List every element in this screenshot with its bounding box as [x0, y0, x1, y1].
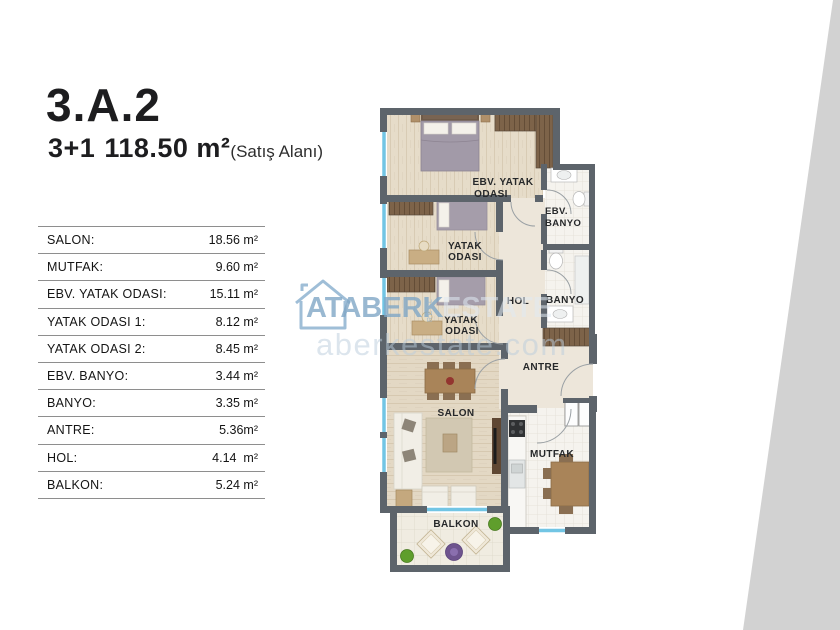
label-ebv-banyo: EBV.	[545, 206, 568, 217]
area-row: MUTFAK: 9.60 m²	[38, 253, 265, 280]
area-row-value: 8.12 m²	[216, 315, 265, 329]
label-banyo: BANYO	[546, 295, 584, 306]
area-row-label: YATAK ODASI 1:	[38, 315, 146, 329]
label-bedroom2: YATAK	[444, 315, 478, 326]
area-row-value: 3.44 m²	[216, 369, 265, 383]
label-bedroom1: YATAK	[448, 241, 482, 252]
area-row-value: 18.56 m²	[209, 233, 265, 247]
area-row-label: MUTFAK:	[38, 260, 103, 274]
label-antre: ANTRE	[523, 362, 559, 373]
label-mutfak: MUTFAK	[530, 449, 574, 460]
area-row-label: EBV. BANYO:	[38, 369, 128, 383]
svg-text:ODASI: ODASI	[474, 189, 508, 200]
area-row: SALON: 18.56 m²	[38, 226, 265, 253]
area-row-label: EBV. YATAK ODASI:	[38, 287, 167, 301]
area-row-label: ANTRE:	[38, 423, 95, 437]
area-row-value: 8.45 m²	[216, 342, 265, 356]
label-salon: SALON	[438, 408, 475, 419]
area-row: BANYO: 3.35 m²	[38, 389, 265, 416]
area-row-value: 5.24 m²	[216, 478, 265, 492]
area-row: BALKON: 5.24 m²	[38, 471, 265, 499]
area-row-label: YATAK ODASI 2:	[38, 342, 146, 356]
area-row: EBV. YATAK ODASI: 15.11 m²	[38, 280, 265, 307]
svg-text:ODASI: ODASI	[448, 252, 482, 263]
area-note: (Satış Alanı)	[230, 143, 323, 160]
layout-type: 3+1	[48, 135, 95, 162]
area-row-label: HOL:	[38, 451, 77, 465]
area-row-value: 4.14 m²	[212, 451, 265, 465]
area-row-value: 5.36m²	[219, 423, 265, 437]
area-row-label: BALKON:	[38, 478, 103, 492]
label-master-bedroom: EBV. YATAK	[472, 177, 533, 188]
area-row: HOL: 4.14 m²	[38, 444, 265, 471]
area-row-label: SALON:	[38, 233, 95, 247]
area-row-value: 9.60 m²	[216, 260, 265, 274]
area-row-value: 3.35 m²	[216, 396, 265, 410]
area-row-value: 15.11 m²	[210, 287, 265, 301]
unit-code-title: 3.A.2	[46, 82, 161, 128]
svg-text:BANYO: BANYO	[545, 218, 581, 229]
total-area: 118.50 m²	[104, 135, 230, 162]
area-row: YATAK ODASI 2: 8.45 m²	[38, 335, 265, 362]
svg-text:ODASI: ODASI	[445, 326, 479, 337]
unit-spec-subtitle: 3+1 118.50 m² (Satış Alanı)	[48, 135, 323, 162]
label-balkon: BALKON	[433, 519, 478, 530]
area-row: ANTRE: 5.36m²	[38, 416, 265, 443]
label-hol: HOL	[507, 296, 529, 307]
area-row: EBV. BANYO: 3.44 m²	[38, 362, 265, 389]
area-table: SALON: 18.56 m² MUTFAK: 9.60 m² EBV. YAT…	[38, 226, 265, 499]
area-row: YATAK ODASI 1: 8.12 m²	[38, 308, 265, 335]
floor-plan: EBV. YATAK ODASI YATAK ODASI YATAK ODASI…	[375, 100, 615, 578]
area-row-label: BANYO:	[38, 396, 96, 410]
hall-closet	[543, 328, 591, 346]
